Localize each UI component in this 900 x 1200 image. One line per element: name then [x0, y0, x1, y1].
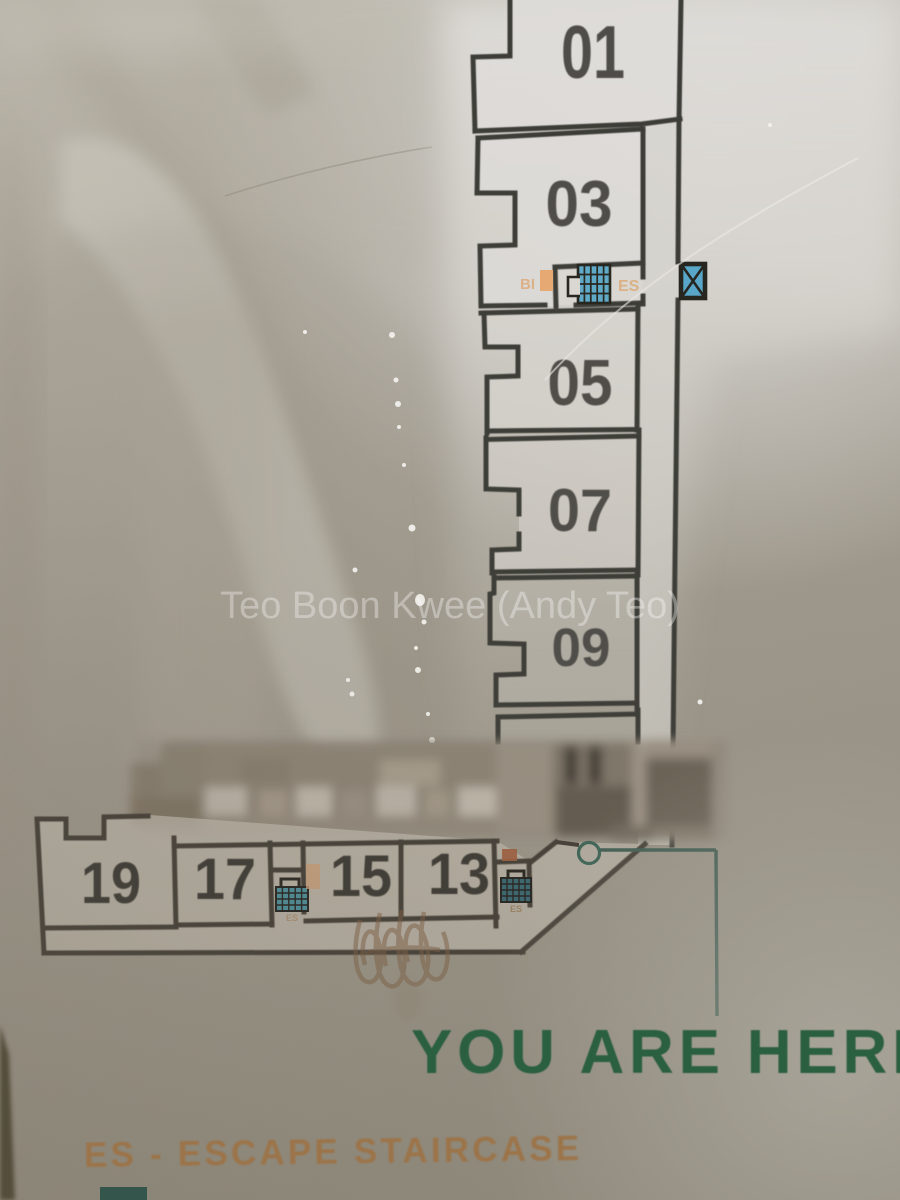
- svg-text:ES - ESCAPE STAIRCASE: ES - ESCAPE STAIRCASE: [84, 1129, 583, 1175]
- svg-text:YOU ARE HERE: YOU ARE HERE: [411, 1018, 900, 1087]
